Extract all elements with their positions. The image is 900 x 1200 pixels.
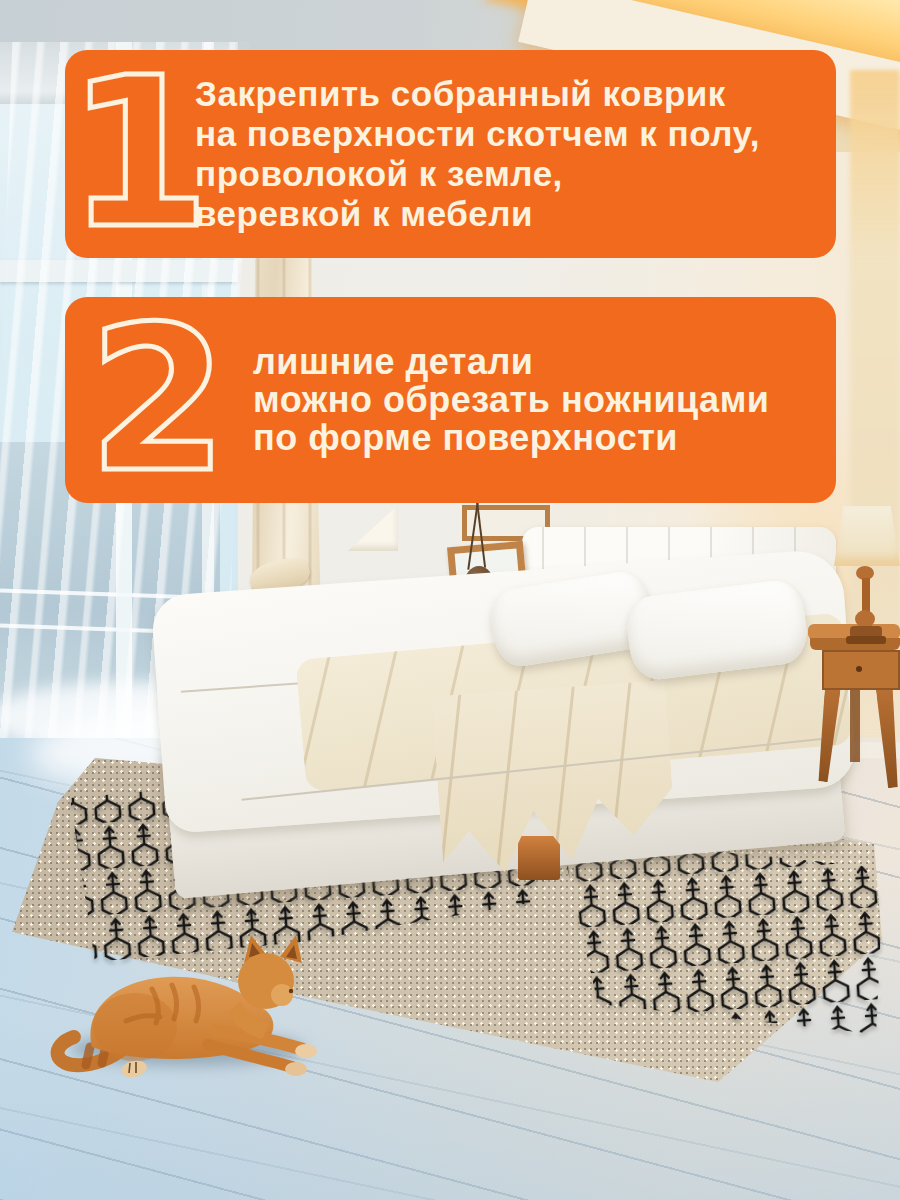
step-number-1: 1 — [67, 51, 195, 257]
step-number-2: 2 — [73, 300, 243, 500]
step-line: Закрепить собранный коврик — [195, 74, 760, 114]
cat-paw — [285, 1062, 307, 1076]
step-1-text: Закрепить собранный коврик на поверхност… — [195, 74, 760, 234]
step-line: по форме поверхности — [253, 419, 769, 457]
step-line: проволокой к земле, — [195, 154, 760, 194]
cat-paw — [295, 1044, 317, 1058]
product-infographic: 1 Закрепить собранный коврик на поверхно… — [0, 0, 900, 1200]
step-line: на поверхности скотчем к полу, — [195, 114, 760, 154]
table-lamp-stem — [862, 578, 870, 614]
cat-hind-paw — [120, 1058, 149, 1079]
step-line: лишние детали — [253, 343, 769, 381]
side-table-knob — [856, 666, 862, 672]
step-card-1: 1 Закрепить собранный коврик на поверхно… — [65, 50, 836, 258]
step-2-text: лишние детали можно обрезать ножницами п… — [253, 343, 769, 457]
table-lamp-base — [846, 636, 886, 644]
cat-figure — [30, 905, 340, 1105]
bed-leg — [518, 836, 560, 880]
cat-ear — [280, 935, 302, 963]
spike-mat-right — [560, 836, 884, 1034]
step-card-2: 2 лишние детали можно обрезать ножницами… — [65, 297, 836, 503]
step-line: можно обрезать ножницами — [253, 381, 769, 419]
step-line: веревкой к мебели — [195, 194, 760, 234]
side-table-leg — [850, 686, 860, 762]
table-lamp-shade — [834, 506, 900, 566]
